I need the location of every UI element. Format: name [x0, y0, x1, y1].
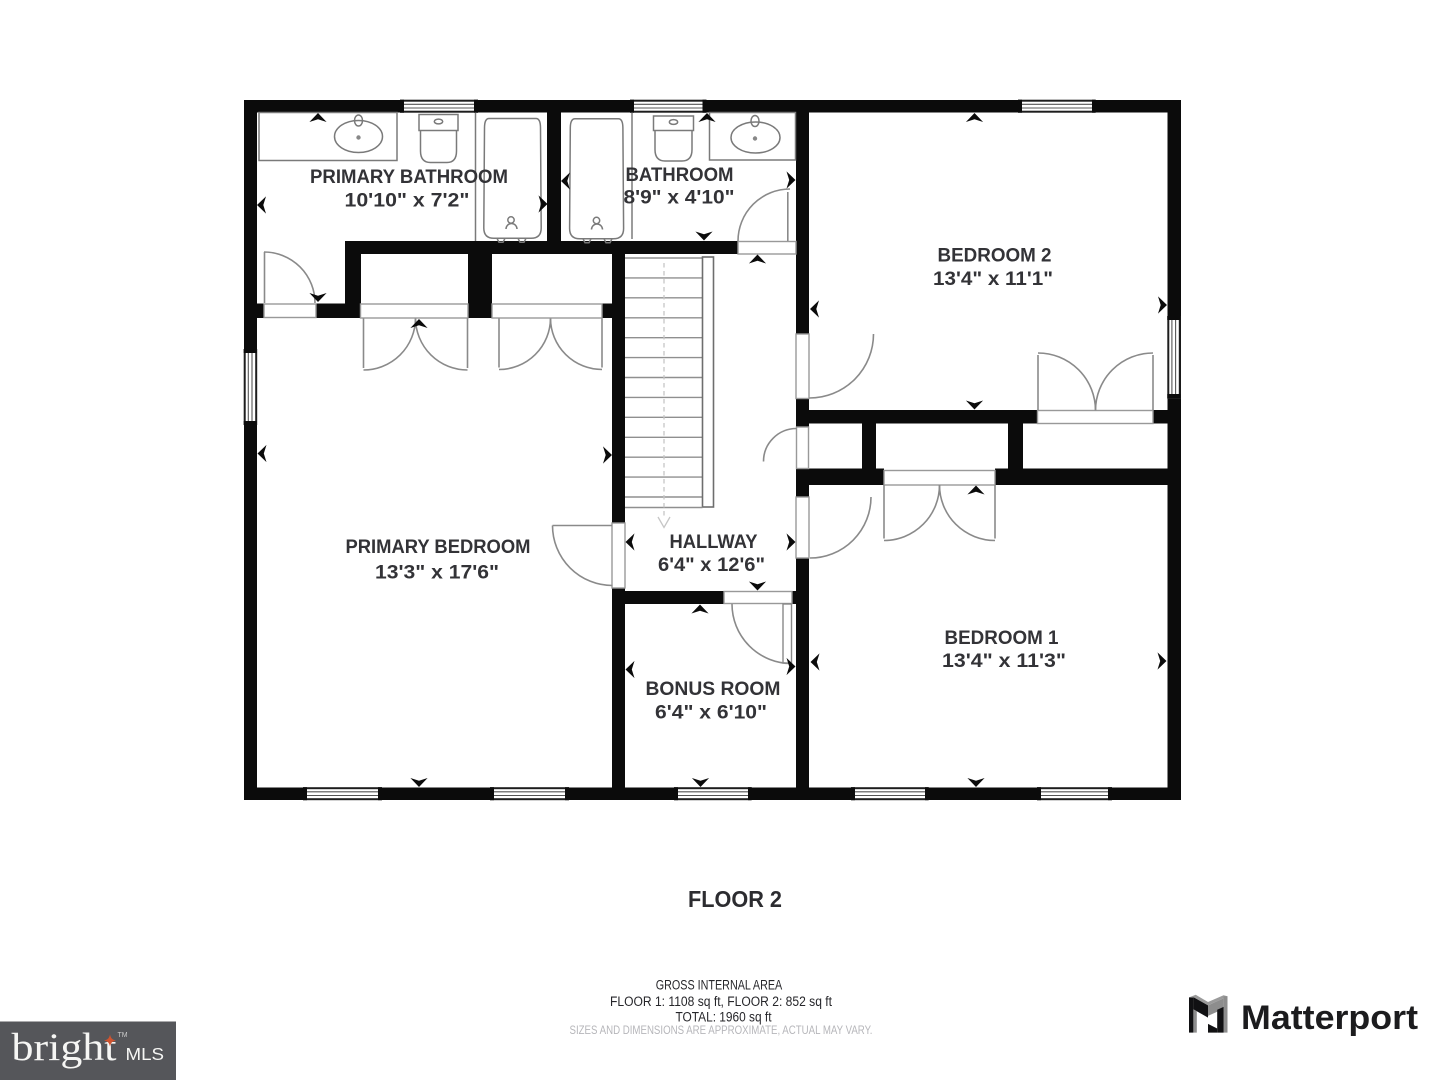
svg-text:13'3" x 17'6": 13'3" x 17'6"	[375, 563, 499, 584]
svg-text:HALLWAY: HALLWAY	[670, 531, 758, 553]
svg-text:13'4" x 11'1": 13'4" x 11'1"	[933, 269, 1053, 290]
svg-text:GROSS INTERNAL AREA: GROSS INTERNAL AREA	[656, 978, 783, 993]
svg-text:PRIMARY BEDROOM: PRIMARY BEDROOM	[346, 536, 531, 558]
svg-text:TOTAL: 1960 sq ft: TOTAL: 1960 sq ft	[676, 1010, 772, 1025]
svg-text:BEDROOM 2: BEDROOM 2	[938, 245, 1052, 267]
svg-text:6'4" x 6'10": 6'4" x 6'10"	[655, 703, 767, 724]
svg-text:MLS: MLS	[126, 1044, 165, 1064]
svg-text:10'10" x 7'2": 10'10" x 7'2"	[345, 191, 470, 212]
svg-text:TM: TM	[118, 1032, 128, 1039]
svg-text:BEDROOM 1: BEDROOM 1	[945, 627, 1059, 649]
svg-text:6'4" x 12'6": 6'4" x 12'6"	[658, 555, 765, 576]
svg-text:BATHROOM: BATHROOM	[626, 164, 734, 186]
svg-text:PRIMARY BATHROOM: PRIMARY BATHROOM	[310, 166, 508, 188]
svg-text:8'9" x 4'10": 8'9" x 4'10"	[624, 188, 735, 209]
svg-text:Matterport: Matterport	[1241, 999, 1418, 1037]
svg-text:bright: bright	[12, 1026, 117, 1069]
svg-text:13'4" x 11'3": 13'4" x 11'3"	[942, 651, 1066, 672]
svg-text:FLOOR 2: FLOOR 2	[688, 886, 782, 912]
svg-text:SIZES AND DIMENSIONS ARE APPRO: SIZES AND DIMENSIONS ARE APPROXIMATE, AC…	[570, 1025, 873, 1037]
svg-text:BONUS ROOM: BONUS ROOM	[646, 678, 781, 700]
svg-text:FLOOR 1: 1108 sq ft, FLOOR 2:: FLOOR 1: 1108 sq ft, FLOOR 2: 852 sq ft	[610, 994, 832, 1009]
